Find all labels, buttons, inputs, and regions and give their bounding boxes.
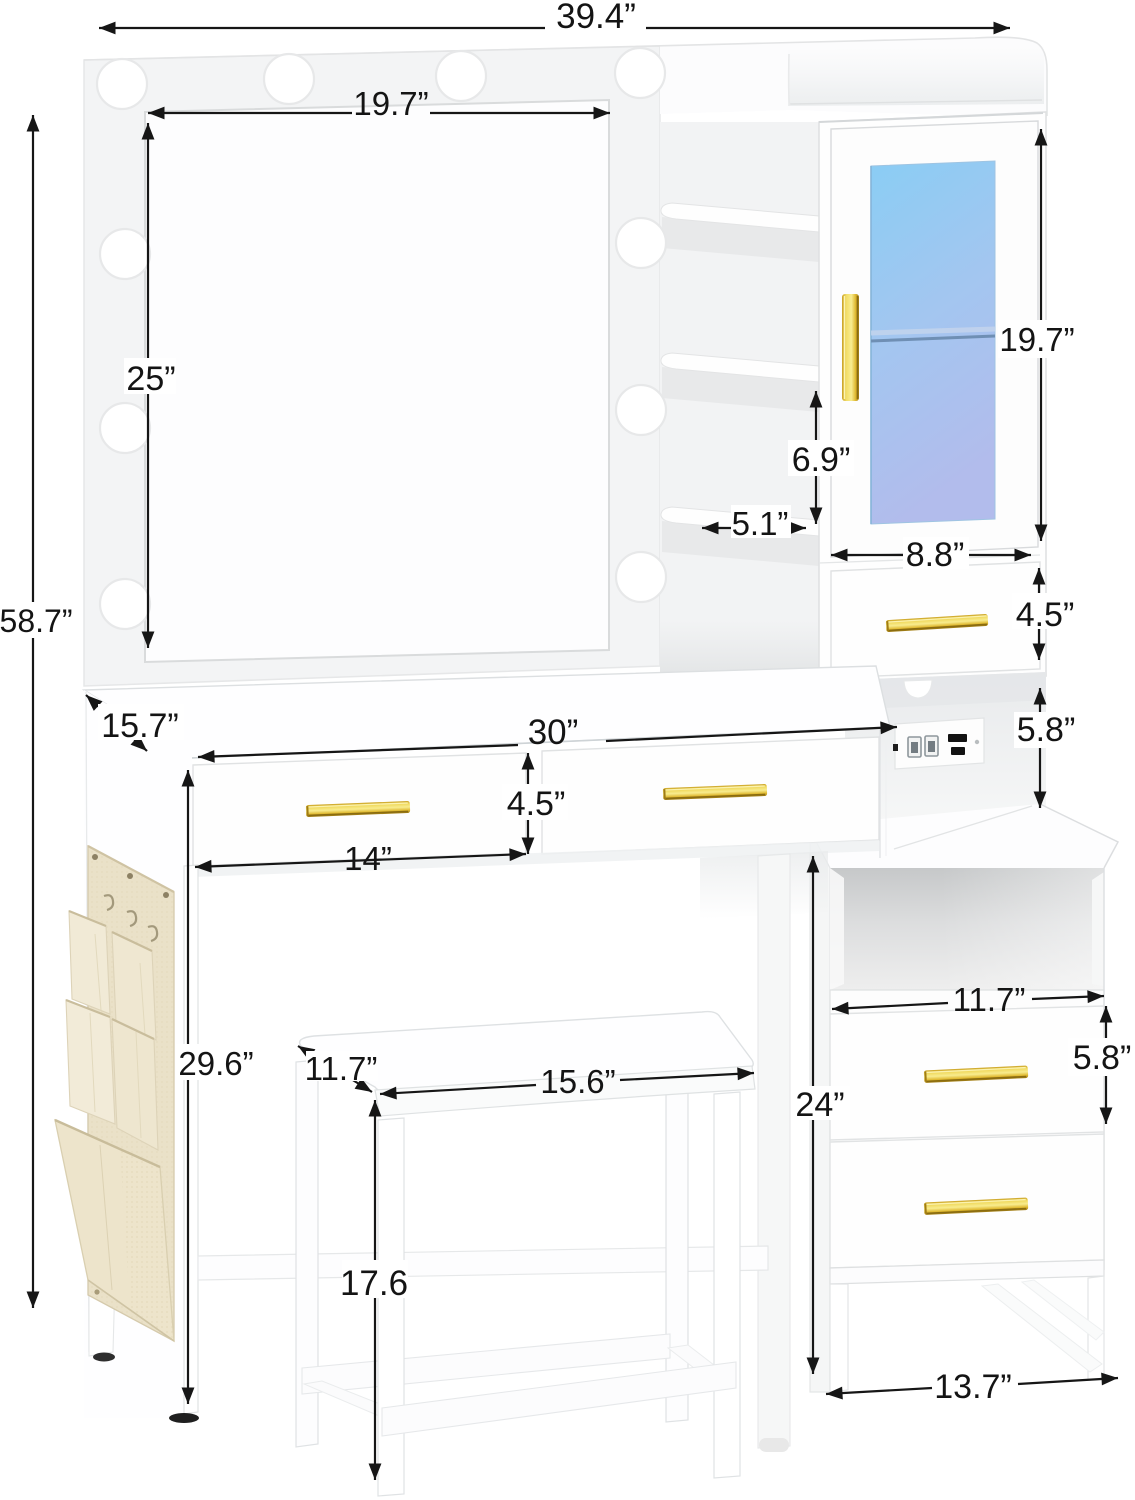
svg-text:14”: 14” [344,840,392,877]
svg-text:13.7”: 13.7” [934,1368,1012,1406]
svg-text:25”: 25” [126,360,175,398]
svg-text:24”: 24” [795,1086,844,1124]
svg-text:11.7”: 11.7” [305,1050,378,1087]
svg-text:19.7”: 19.7” [999,321,1074,358]
svg-text:8.8”: 8.8” [906,536,965,574]
svg-text:4.5”: 4.5” [507,785,566,823]
svg-text:30”: 30” [528,713,579,752]
svg-text:39.4”: 39.4” [556,0,636,36]
svg-text:15.7”: 15.7” [101,707,179,745]
svg-text:5.8”: 5.8” [1017,711,1076,749]
svg-text:15.6”: 15.6” [540,1063,615,1100]
svg-text:4.5”: 4.5” [1016,596,1075,634]
svg-text:6.9”: 6.9” [792,441,851,479]
svg-text:29.6”: 29.6” [178,1045,253,1082]
svg-text:58.7”: 58.7” [0,603,72,639]
svg-text:17.6: 17.6 [340,1264,408,1303]
svg-text:5.8”: 5.8” [1073,1039,1132,1077]
svg-text:5.1”: 5.1” [732,505,789,542]
svg-text:11.7”: 11.7” [953,981,1026,1018]
svg-text:19.7”: 19.7” [353,85,428,122]
